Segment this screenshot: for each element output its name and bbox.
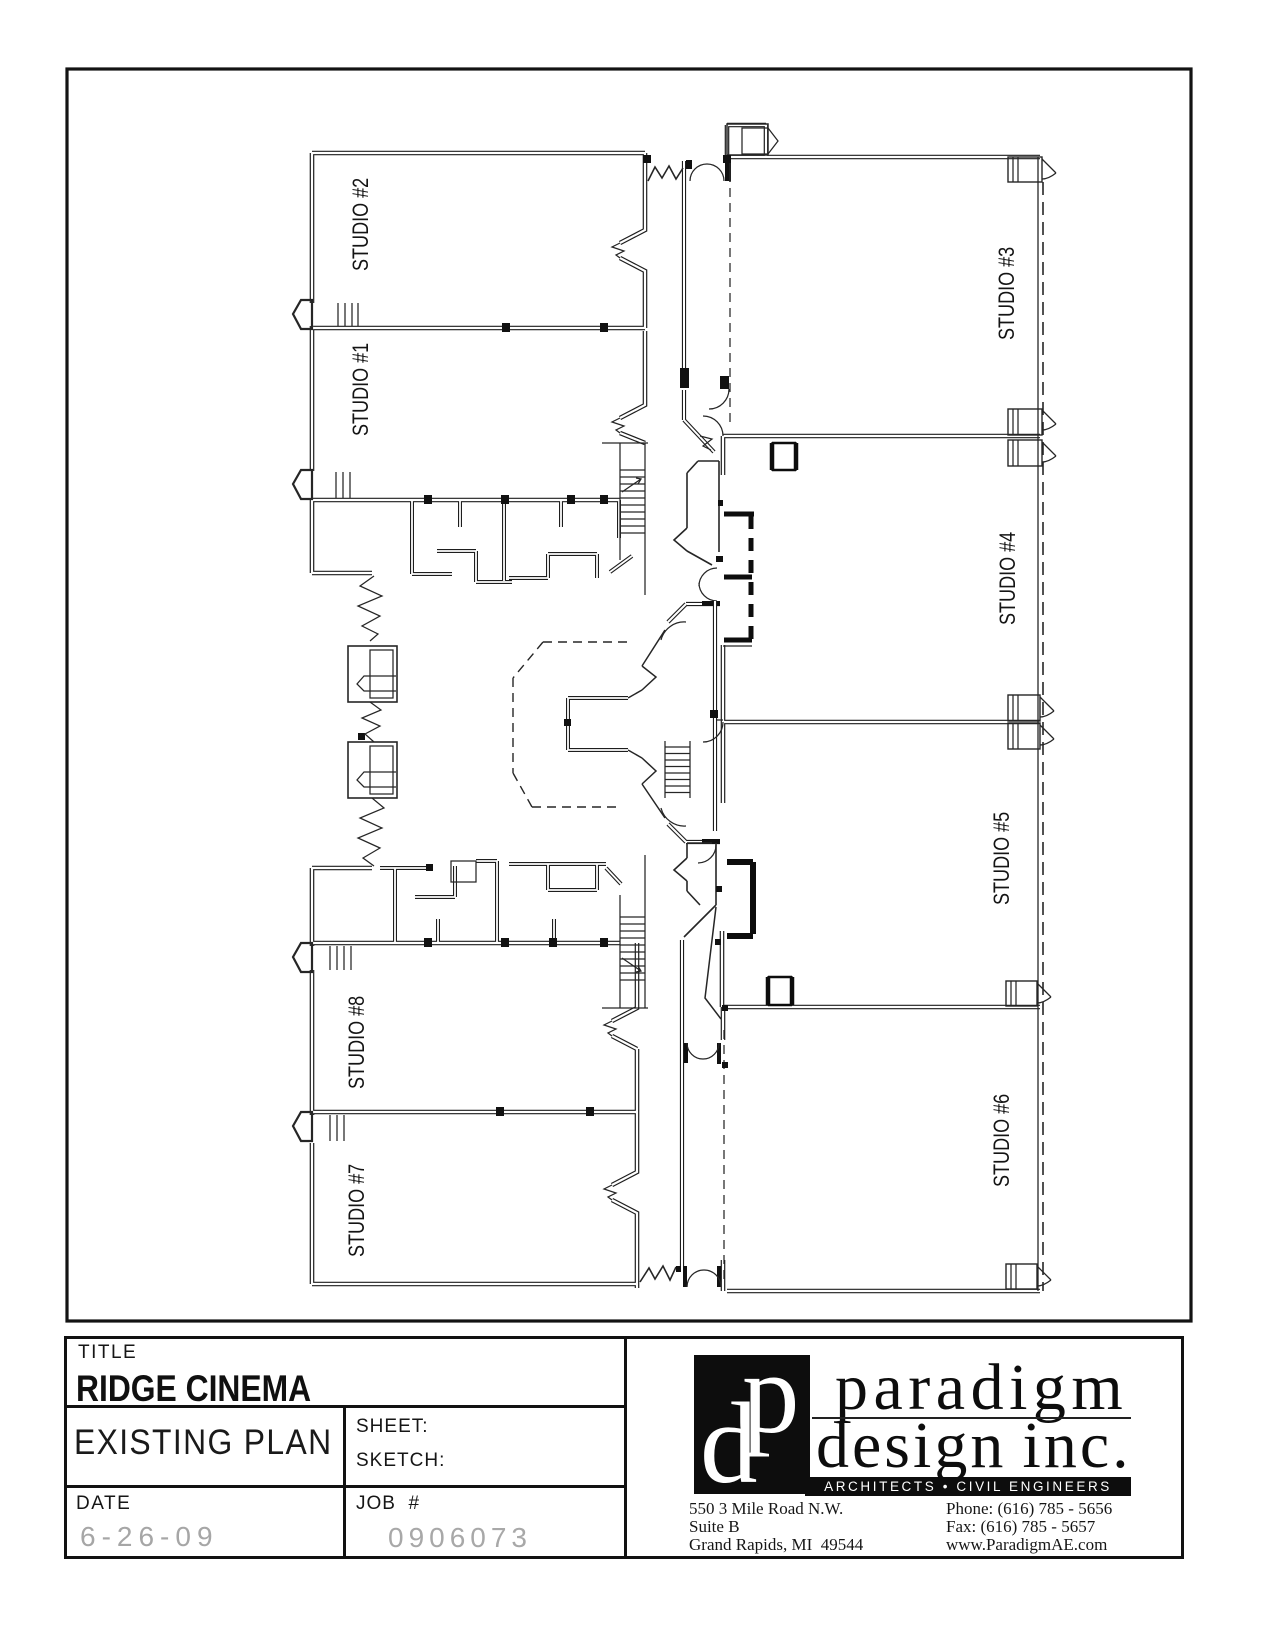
svg-text:STUDIO #8: STUDIO #8	[345, 996, 369, 1089]
svg-text:STUDIO #7: STUDIO #7	[345, 1164, 369, 1257]
svg-text:STUDIO #2: STUDIO #2	[349, 178, 373, 271]
svg-text:STUDIO #3: STUDIO #3	[995, 247, 1019, 340]
svg-text:STUDIO #5: STUDIO #5	[990, 812, 1014, 905]
svg-text:STUDIO #6: STUDIO #6	[990, 1094, 1014, 1187]
svg-text:STUDIO #1: STUDIO #1	[349, 343, 373, 436]
svg-text:STUDIO #4: STUDIO #4	[996, 532, 1020, 625]
